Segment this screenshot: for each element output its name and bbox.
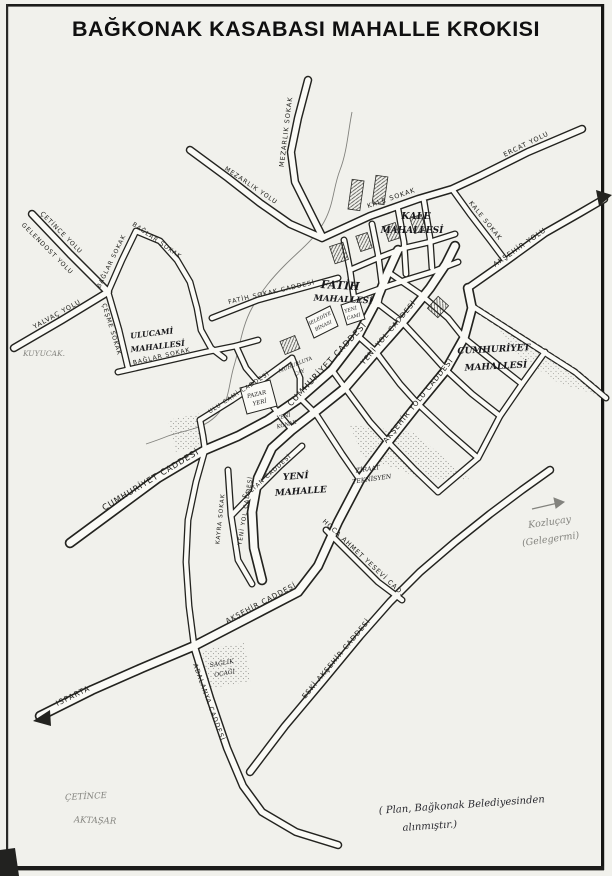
page-title: BAĞKONAK KASABASI MAHALLE KROKISI (72, 16, 540, 41)
note-kozlucay: Kozluçay (527, 514, 573, 531)
label-aksehir-yolu: AKŞEHİR YOLU (491, 225, 548, 268)
label-kayra-sokak: KAYRA SOKAK (215, 493, 226, 544)
road-eski-aksehir-caddesi (250, 470, 550, 772)
map-canvas: BAĞKONAK KASABASI MAHALLE KROKISI (0, 0, 612, 876)
label-eski-aksehir-caddesi: ESKİ AKŞEHİR CADDESİ (300, 617, 372, 701)
label-cumhuriyet-caddesi-sw: CUMHURİYET CADDESİ (100, 446, 201, 512)
note-kuyucak: KUYUCAK. (22, 349, 65, 358)
label-hoca-ahmet-yesevi: HOCA AHMET YESEVİ CAD. (321, 517, 407, 598)
label-ulucami-mahallesi-1: ULUCAMİ (130, 326, 174, 340)
label-kale-mahallesi-1: KALE (400, 211, 431, 222)
label-baglar-sokak-2: BAĞLAR SOKAK (131, 221, 183, 261)
scan-border (0, 4, 604, 876)
label-fatih-sokak: FATİH SOKAK CADDESİ (227, 277, 315, 306)
road-mezarlik-sokak (291, 80, 322, 236)
road-fills (14, 80, 606, 845)
source-note-line2: alınmıştır.) (402, 819, 457, 834)
kozlucay-arrow-icon (532, 498, 564, 509)
label-fatih-mahallesi-1: FATİH (319, 277, 360, 293)
label-yeni-mahalle-2: MAHALLE (274, 485, 328, 499)
scanned-map-page: BAĞKONAK KASABASI MAHALLE KROKISI (0, 0, 612, 876)
label-yeni-mahalle-1: YENİ (282, 468, 309, 483)
road-casings (14, 80, 606, 845)
note-cetince: ÇETİNCE (65, 789, 108, 803)
note-kozlucay-old: (Gelegermi) (521, 530, 580, 549)
note-aktasar: AKTAŞAR (73, 815, 117, 827)
source-note-line1: ( Plan, Bağkonak Belediyesinden (379, 794, 546, 817)
